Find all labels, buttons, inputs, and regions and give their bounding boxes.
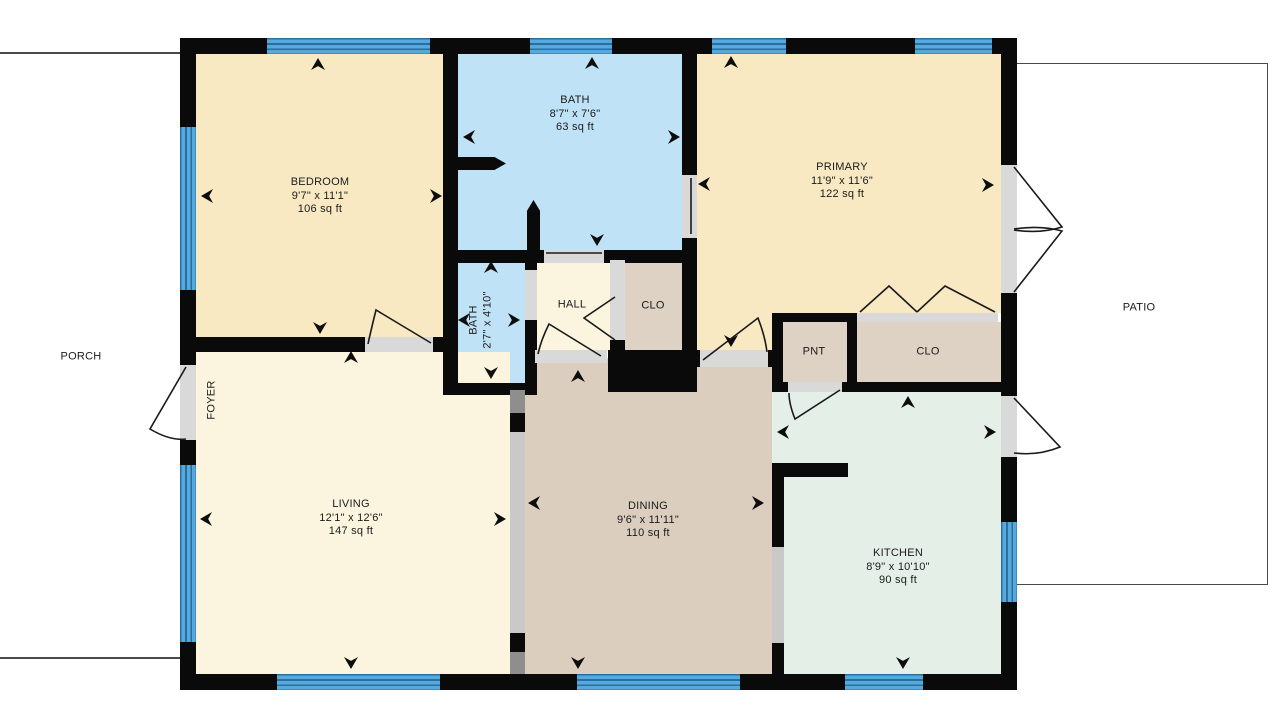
- kitchen-patio-door-leaf: [1014, 398, 1060, 454]
- room-dims: 8'9" x 10'10": [866, 560, 930, 574]
- room-dims: 12'1" x 12'6": [319, 511, 383, 525]
- room-name: FOYER: [205, 380, 219, 419]
- kitchen-closet-bifold: [860, 286, 995, 312]
- room-name: KITCHEN: [866, 547, 930, 561]
- room-name: HALL: [558, 298, 587, 312]
- dining-label: DINING 9'6" x 11'11" 110 sq ft: [617, 500, 679, 541]
- room-dims: 11'9" x 11'6": [811, 174, 873, 188]
- room-area: 106 sq ft: [291, 203, 350, 217]
- door-swing-overlay: [0, 0, 1280, 720]
- room-dims: 9'7" x 11'1": [291, 189, 350, 203]
- hall-closet-label: CLO: [641, 299, 664, 313]
- room-name: PRIMARY: [811, 161, 873, 175]
- foyer-label: FOYER: [205, 380, 219, 419]
- small-bath-label: BATH 2'7" x 4'10": [468, 291, 495, 348]
- floor-plan: BEDROOM 9'7" x 11'1" 106 sq ft BATH 8'7"…: [0, 0, 1280, 720]
- hall-closet-bifold: [584, 297, 615, 340]
- bedroom-label: BEDROOM 9'7" x 11'1" 106 sq ft: [291, 176, 350, 217]
- bath-label: BATH 8'7" x 7'6" 63 sq ft: [550, 94, 601, 135]
- area-name: PORCH: [61, 350, 102, 364]
- kitchen-label: KITCHEN 8'9" x 10'10" 90 sq ft: [866, 547, 930, 588]
- living-label: LIVING 12'1" x 12'6" 147 sq ft: [319, 498, 383, 539]
- room-area: 122 sq ft: [811, 188, 873, 202]
- front-door-leaf: [150, 367, 186, 439]
- room-area: 110 sq ft: [617, 527, 679, 541]
- room-dims: 8'7" x 7'6": [550, 107, 601, 121]
- primary-label: PRIMARY 11'9" x 11'6" 122 sq ft: [811, 161, 873, 202]
- room-dims: 9'6" x 11'11": [617, 513, 679, 527]
- hall-door-leaf: [538, 324, 601, 356]
- room-name: BATH: [468, 291, 482, 348]
- room-name: CLO: [916, 345, 939, 359]
- room-name: LIVING: [319, 498, 383, 512]
- pantry-door-leaf: [789, 390, 840, 419]
- hall-label: HALL: [558, 298, 587, 312]
- kitchen-closet-label: CLO: [916, 345, 939, 359]
- porch-label: PORCH: [61, 350, 102, 364]
- room-name: DINING: [617, 500, 679, 514]
- room-area: 63 sq ft: [550, 121, 601, 135]
- patio-label: PATIO: [1123, 301, 1156, 315]
- area-name: PATIO: [1123, 301, 1156, 315]
- room-name: BEDROOM: [291, 176, 350, 190]
- room-dims: 2'7" x 4'10": [481, 291, 495, 348]
- room-name: BATH: [550, 94, 601, 108]
- room-area: 147 sq ft: [319, 525, 383, 539]
- patio-french-door-leaf-bottom: [1014, 227, 1062, 292]
- patio-french-door-leaf-top: [1014, 167, 1062, 231]
- room-name: CLO: [641, 299, 664, 313]
- pantry-label: PNT: [803, 345, 826, 359]
- bedroom-door-leaf: [368, 310, 431, 344]
- room-area: 90 sq ft: [866, 574, 930, 588]
- room-name: PNT: [803, 345, 826, 359]
